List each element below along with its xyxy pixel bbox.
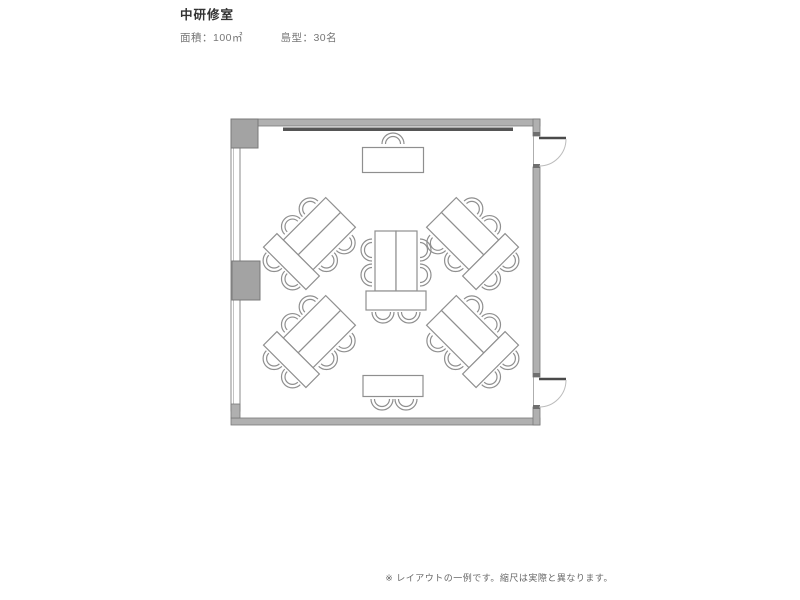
door-bottom <box>533 373 566 409</box>
table <box>363 148 424 173</box>
door-swing-arc-icon <box>539 139 566 166</box>
wall-right-seg2 <box>533 167 540 377</box>
table <box>366 291 426 310</box>
door-top <box>533 132 566 168</box>
floorplan-page: 中研修室 面積：100㎡ 島型：30名 <box>0 0 800 600</box>
wall-bottom <box>231 418 540 425</box>
wall-top <box>231 119 540 126</box>
door-frame-icon <box>533 373 540 377</box>
table <box>375 231 396 291</box>
footer-note: ※ レイアウトの一例です。縮尺は実際と異なります。 <box>385 571 613 584</box>
door-frame-icon <box>533 164 540 168</box>
floorplan-svg <box>0 0 800 600</box>
door-frame-icon <box>533 405 540 409</box>
column-top-left <box>231 119 258 148</box>
column-mid-left <box>232 261 260 300</box>
door-swing-arc-icon <box>539 380 566 407</box>
table <box>363 376 423 397</box>
wall-left-stub <box>231 404 240 418</box>
door-frame-icon <box>533 132 540 136</box>
table <box>396 231 417 291</box>
whiteboard <box>283 128 513 132</box>
wall-right-seg3 <box>533 407 540 425</box>
